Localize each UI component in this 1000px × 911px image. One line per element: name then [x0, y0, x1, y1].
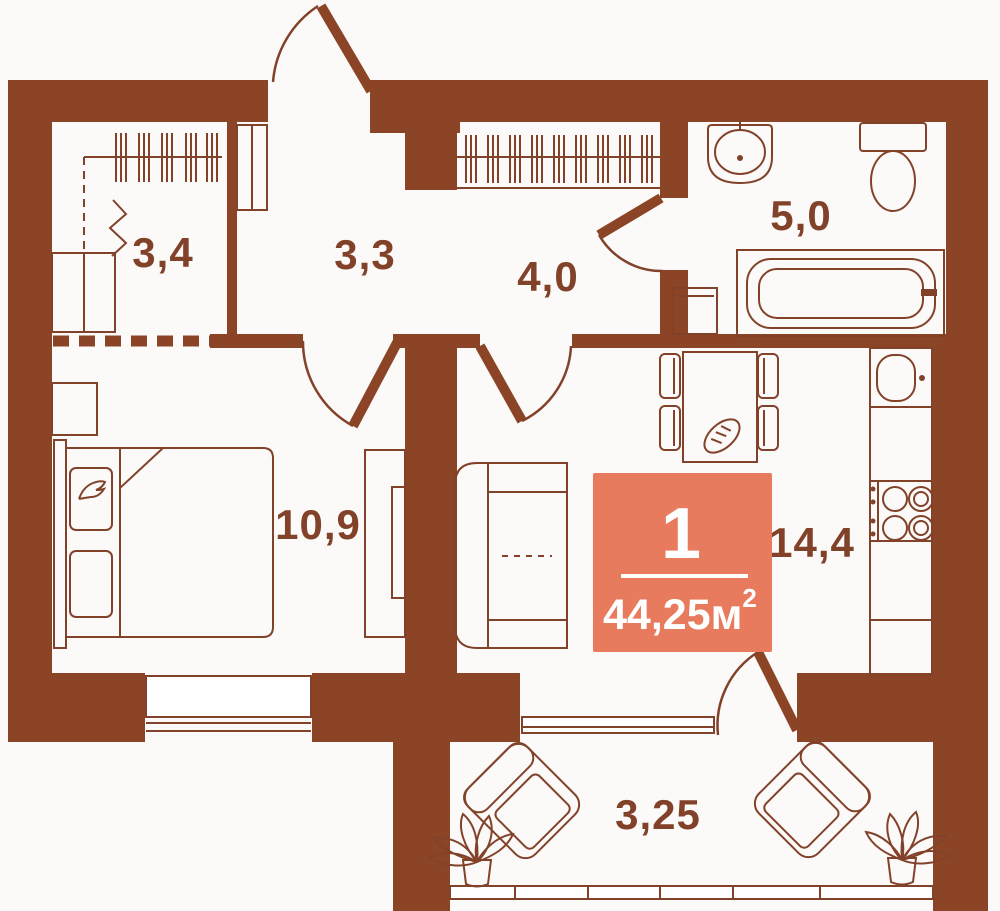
wall-left: [8, 80, 52, 742]
label-kitchen-living: 14,4: [769, 519, 855, 566]
bathroom-door-arc: [599, 235, 663, 271]
living-window: [522, 717, 714, 733]
kitchen-sink-icon: [877, 355, 925, 401]
armchair-right: [749, 737, 875, 863]
wall-bottom-kitchen: [797, 673, 947, 742]
wall-hall-pillar: [405, 122, 457, 190]
shelf-unit: [52, 253, 115, 332]
corridor-closet-hangers: [466, 135, 652, 183]
sofa-icon: [455, 463, 567, 648]
stove-icon: [871, 481, 934, 541]
badge-room-count: 1: [661, 494, 701, 574]
dining-table: [683, 352, 757, 462]
bedroom-wardrobe: [365, 450, 405, 637]
kitchen-counter: [870, 348, 933, 675]
label-bathroom: 5,0: [770, 192, 831, 239]
label-dressing-room: 3,4: [132, 229, 193, 276]
badge-total-area: 44,25м2: [603, 583, 757, 639]
area-badge: 1 44,25м2: [593, 473, 772, 652]
label-corridor: 4,0: [517, 253, 578, 300]
balcony-glazing: [450, 886, 933, 899]
balcony-door-arc: [717, 652, 758, 735]
walls: [8, 80, 988, 911]
double-bed: [54, 440, 273, 648]
living-door-leaf: [480, 346, 522, 421]
balcony-door-leaf: [758, 652, 797, 730]
toilet-icon: [860, 123, 926, 211]
wall-central-column: [405, 334, 457, 673]
dining-chairs: [660, 354, 778, 450]
bathtub-icon: [737, 250, 944, 336]
floor-plan: 3,4 3,3 4,0 5,0 10,9 14,4 3,25 1 44,25м2: [0, 0, 1000, 911]
feather-icon: [79, 481, 105, 499]
bedroom-door-arc: [303, 341, 353, 426]
bedroom-door-leaf: [353, 341, 398, 426]
wall-bottom-bedroom: [8, 673, 145, 742]
living-door-arc: [522, 346, 571, 421]
floor-plan-page: 3,4 3,3 4,0 5,0 10,9 14,4 3,25 1 44,25м2: [0, 0, 1000, 911]
bread-icon: [698, 413, 745, 459]
label-bedroom: 10,9: [275, 501, 361, 548]
wall-interior-hall: [210, 334, 303, 348]
entrance-door-leaf: [321, 6, 371, 91]
sink-icon: [708, 119, 772, 183]
bedroom-window: [146, 676, 311, 731]
bathroom-door-leaf: [599, 198, 661, 235]
wall-right-upper: [946, 80, 988, 350]
wall-bathroom-left-upper: [660, 122, 688, 198]
spring-symbol: [110, 200, 126, 256]
wall-dressing-divider: [227, 122, 237, 334]
wall-bottom-center: [312, 673, 520, 742]
shoe-cabinet: [237, 125, 267, 210]
entrance-door-arc: [273, 6, 318, 82]
wall-right-mid: [932, 348, 988, 675]
wall-top-right: [370, 80, 988, 122]
nightstand: [52, 383, 97, 435]
label-hallway: 3,3: [334, 231, 395, 278]
label-balcony: 3,25: [615, 791, 701, 838]
wall-balcony-left: [393, 742, 450, 911]
